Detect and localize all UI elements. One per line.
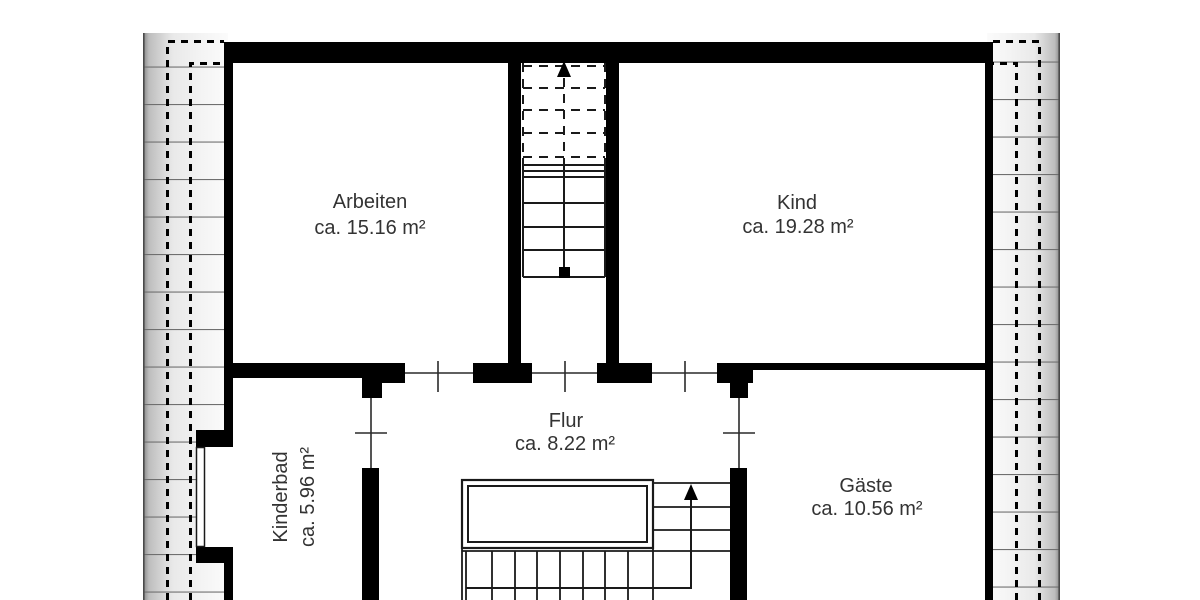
staircase-lower: [462, 480, 730, 600]
wall-flur-top-seg4: [717, 363, 753, 383]
stair-up-arrow-icon: [684, 484, 698, 500]
room-area-kinderbad: ca. 5.96 m²: [297, 447, 319, 547]
stair-start-marker: [559, 267, 570, 278]
door-gaeste: [723, 398, 755, 468]
wall-lining-left-lower: [224, 563, 233, 600]
stair-up-arrow-icon: [557, 61, 571, 77]
exterior-wall-top: [224, 42, 993, 63]
staircase-upper: [523, 61, 605, 278]
room-area-gaeste: ca. 10.56 m²: [811, 498, 923, 520]
stair-upper-dashed-section: [523, 63, 605, 157]
door-stair-flur: [532, 361, 597, 392]
room-area-kind: ca. 19.28 m²: [742, 216, 854, 238]
window-reveal: [205, 447, 233, 547]
door-arbeiten-flur: [405, 361, 473, 392]
wall-flur-top-seg2: [473, 363, 532, 383]
stairwell-void-outer-rail: [462, 480, 653, 548]
room-label-kind: Kind: [777, 192, 817, 214]
wall-kind-bottom: [748, 363, 993, 370]
window-glazing: [197, 448, 205, 547]
wall-flur-top-seg1: [362, 363, 405, 383]
room-label-gaeste: Gäste: [839, 475, 892, 497]
wall-lining-left-upper: [224, 42, 233, 430]
floor-plan-canvas: Arbeiten ca. 15.16 m² Kind ca. 19.28 m² …: [0, 0, 1200, 600]
window-jamb-top: [196, 430, 233, 447]
roof-band-right: [987, 33, 1060, 600]
room-area-arbeiten: ca. 15.16 m²: [314, 217, 426, 239]
room-label-flur: Flur: [549, 410, 584, 432]
window-jamb-bottom: [196, 547, 233, 563]
roof-band-right-courses: [987, 33, 1060, 600]
door-kind-flur: [652, 361, 717, 392]
wall-pillar-kinderbad: [362, 383, 382, 398]
stairwell-wall-right: [606, 63, 619, 363]
room-area-flur: ca. 8.22 m²: [515, 433, 615, 455]
stairwell-wall-left: [508, 63, 521, 363]
floor-plan: Arbeiten ca. 15.16 m² Kind ca. 19.28 m² …: [0, 0, 1200, 600]
room-label-arbeiten: Arbeiten: [333, 191, 408, 213]
wall-flur-top-seg3: [597, 363, 652, 383]
window-kinderbad: [196, 430, 233, 563]
room-label-kinderbad: Kinderbad: [270, 451, 292, 542]
wall-lining-right: [985, 42, 993, 600]
room-label-kinderbad-group: Kinderbad ca. 5.96 m²: [270, 447, 319, 547]
stair-upper-solid-section: [523, 158, 605, 277]
door-kinderbad: [355, 398, 387, 468]
wall-pillar-gaeste: [730, 383, 748, 398]
wall-kinderbad-right: [362, 468, 379, 600]
wall-gaeste-left: [730, 468, 747, 600]
wall-arbeiten-bottom: [233, 363, 362, 378]
